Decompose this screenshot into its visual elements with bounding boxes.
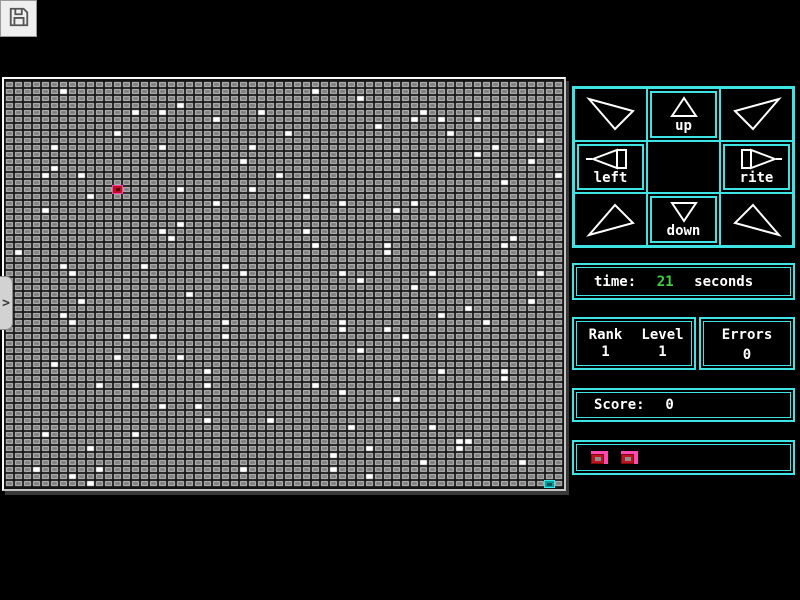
dpad-left-label: left — [594, 171, 628, 186]
triangle-down-left-icon — [585, 202, 637, 238]
dpad-up-right-button[interactable] — [720, 88, 793, 141]
errors-label: Errors — [722, 327, 773, 343]
life-indicator — [591, 451, 608, 464]
dpad-down-button[interactable]: down — [647, 193, 720, 246]
time-panel: time: 21 seconds — [572, 263, 795, 300]
playing-field — [2, 77, 566, 491]
dpad-center-cell — [647, 141, 720, 194]
dpad-rite-button[interactable]: rite — [720, 141, 793, 194]
rank-level-panel: Rank Level 1 1 — [572, 317, 696, 370]
errors-panel: Errors 0 — [699, 317, 795, 370]
triangle-down-right-icon — [731, 202, 783, 238]
rank-value: 1 — [577, 344, 634, 360]
dpad-rite-label: rite — [740, 171, 774, 186]
triangle-right-icon — [731, 147, 783, 171]
player-cell — [112, 185, 123, 194]
dpad-up-button[interactable]: up — [647, 88, 720, 141]
score-label: Score: — [594, 397, 645, 413]
game-screen: > upleftritedown time: 21 seconds Rank L… — [0, 0, 800, 600]
level-value: 1 — [634, 344, 691, 360]
time-unit: seconds — [694, 274, 753, 290]
time-label: time: — [594, 274, 636, 290]
dpad-down-label: down — [667, 224, 701, 239]
lives-panel — [572, 440, 795, 475]
side-panel-handle[interactable]: > — [0, 276, 13, 330]
dpad-left-button[interactable]: left — [574, 141, 647, 194]
level-label: Level — [634, 327, 691, 343]
time-value: 21 — [636, 274, 694, 290]
triangle-up-left-icon — [585, 96, 637, 132]
dpad-up-left-button[interactable] — [574, 88, 647, 141]
goal-cell — [544, 480, 555, 488]
triangle-up-icon — [658, 95, 710, 119]
floppy-disk-icon — [8, 6, 30, 32]
dpad-down-right-button[interactable] — [720, 193, 793, 246]
playing-field-grid[interactable] — [5, 81, 563, 487]
triangle-up-right-icon — [731, 96, 783, 132]
triangle-left-icon — [585, 147, 637, 171]
chevron-right-icon: > — [2, 296, 10, 311]
score-value: 0 — [645, 397, 695, 413]
direction-pad: upleftritedown — [572, 86, 795, 248]
dpad-up-label: up — [675, 119, 692, 134]
dpad-down-left-button[interactable] — [574, 193, 647, 246]
score-panel: Score: 0 — [572, 388, 795, 422]
save-button[interactable] — [0, 0, 37, 37]
errors-value: 0 — [743, 347, 751, 363]
rank-label: Rank — [577, 327, 634, 343]
triangle-down-icon — [658, 200, 710, 224]
life-indicator — [621, 451, 638, 464]
